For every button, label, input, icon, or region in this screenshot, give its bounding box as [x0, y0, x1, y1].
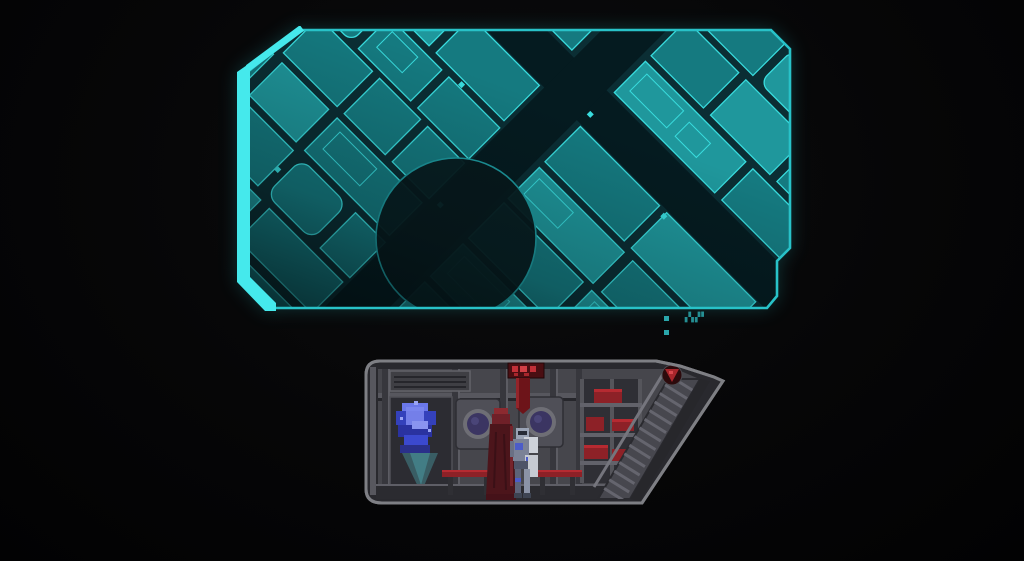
map-vignette — [234, 26, 792, 316]
hull-inner-trim — [370, 367, 376, 495]
hologram-projector[interactable] — [390, 397, 452, 495]
vent-grille — [390, 371, 470, 391]
city-map-panel[interactable] — [234, 26, 792, 316]
hud-glyph-text: ▗▚▞▘ — [682, 313, 708, 323]
hud-ticker: ▗▚▞▘ — [662, 312, 732, 342]
hud-dot-icon — [664, 316, 669, 321]
city-map-content — [234, 26, 792, 316]
hud-dot-icon — [664, 330, 669, 335]
ship-interior — [354, 357, 732, 507]
ship-emblem — [662, 365, 682, 385]
game-scene: ▗▚▞▘ — [0, 0, 1024, 561]
